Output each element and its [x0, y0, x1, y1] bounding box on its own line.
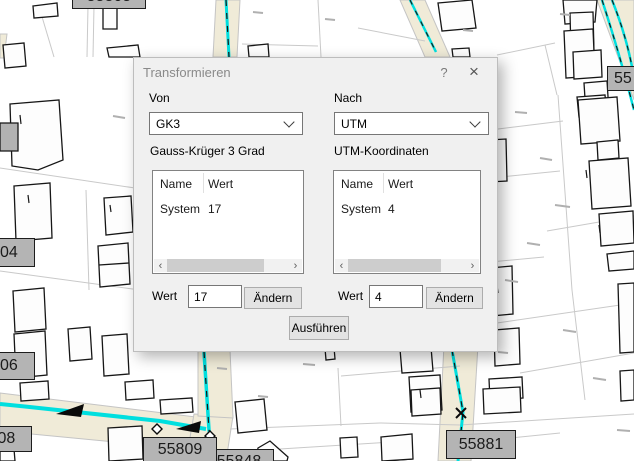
execute-button[interactable]: Ausführen [289, 316, 349, 340]
table-cell-name[interactable]: System [160, 202, 200, 216]
column-header-name[interactable]: Name [341, 177, 373, 191]
close-icon[interactable]: × [459, 61, 489, 83]
scroll-right-icon[interactable]: › [289, 259, 302, 272]
from-combobox-value: GK3 [156, 117, 285, 131]
from-combobox[interactable]: GK3 [149, 112, 303, 135]
table-cell-value[interactable]: 17 [208, 202, 221, 216]
to-label: Nach [334, 91, 362, 105]
column-separator [383, 173, 384, 193]
dialog-titlebar[interactable]: Transformieren ? × [134, 58, 497, 86]
table-cell-value[interactable]: 4 [388, 202, 395, 216]
right-wert-label: Wert [338, 289, 363, 303]
map-label-left-upper: 55804 [0, 238, 35, 267]
column-header-wert[interactable]: Wert [208, 177, 233, 191]
chevron-down-icon [283, 116, 294, 127]
scrollbar-thumb[interactable] [348, 259, 441, 272]
map-label-right-upper: 55 [607, 66, 634, 91]
transform-dialog: Transformieren ? × Von Nach GK3 UTM Gaus… [133, 57, 498, 352]
left-change-button[interactable]: Ändern [244, 287, 302, 309]
right-change-button[interactable]: Ändern [426, 287, 483, 309]
table-cell-name[interactable]: System [341, 202, 381, 216]
right-wert-input[interactable] [369, 285, 423, 308]
column-header-wert[interactable]: Wert [388, 177, 413, 191]
horizontal-scrollbar[interactable]: ‹ › [154, 259, 302, 272]
scroll-left-icon[interactable]: ‹ [335, 259, 348, 272]
right-parameter-table[interactable]: Name Wert System 4 ‹ › [333, 170, 481, 274]
scroll-left-icon[interactable]: ‹ [154, 259, 167, 272]
scroll-right-icon[interactable]: › [466, 259, 479, 272]
help-icon[interactable]: ? [429, 61, 459, 83]
left-group-heading: Gauss-Krüger 3 Grad [150, 144, 265, 158]
map-label-left-lower: 55808 [0, 426, 32, 452]
from-label: Von [149, 91, 170, 105]
right-group-heading: UTM-Koordinaten [334, 144, 429, 158]
chevron-down-icon [469, 116, 480, 127]
screen: 55805 55804 55806 55808 55848 55809 5588… [0, 0, 634, 461]
dialog-title: Transformieren [143, 65, 429, 80]
scrollbar-thumb[interactable] [167, 259, 264, 272]
horizontal-scrollbar[interactable]: ‹ › [335, 259, 479, 272]
left-wert-label: Wert [152, 289, 177, 303]
left-wert-input[interactable] [188, 285, 242, 308]
left-parameter-table[interactable]: Name Wert System 17 ‹ › [152, 170, 304, 274]
to-combobox-value: UTM [341, 117, 471, 131]
map-label-bottom-right: 55881 [446, 430, 516, 459]
map-label-bottom-1: 55809 [143, 437, 217, 461]
map-label-top: 55805 [72, 0, 146, 9]
to-combobox[interactable]: UTM [334, 112, 489, 135]
column-separator [203, 173, 204, 193]
column-header-name[interactable]: Name [160, 177, 192, 191]
map-label-left-middle: 55806 [0, 352, 35, 380]
